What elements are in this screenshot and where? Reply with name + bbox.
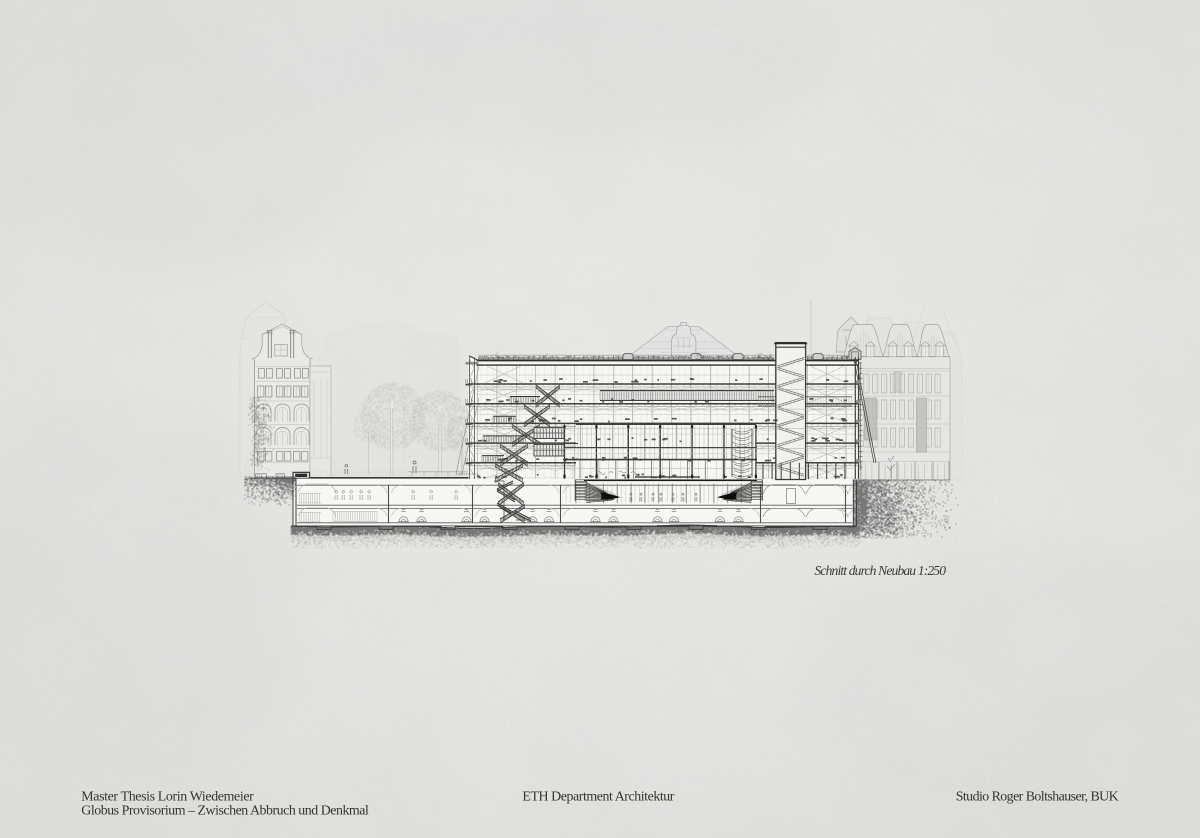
svg-text:Globus Provisorium – Zwischen: Globus Provisorium – Zwischen Abbruch un… [81,803,369,818]
svg-text:ETH Department Architektur: ETH Department Architektur [522,790,674,805]
svg-text:Master Thesis Lorin Wiedemeier: Master Thesis Lorin Wiedemeier [81,790,254,805]
svg-text:Schnitt durch Neubau 1:250: Schnitt durch Neubau 1:250 [815,563,947,578]
svg-text:Studio Roger Boltshauser, BUK: Studio Roger Boltshauser, BUK [956,790,1119,805]
